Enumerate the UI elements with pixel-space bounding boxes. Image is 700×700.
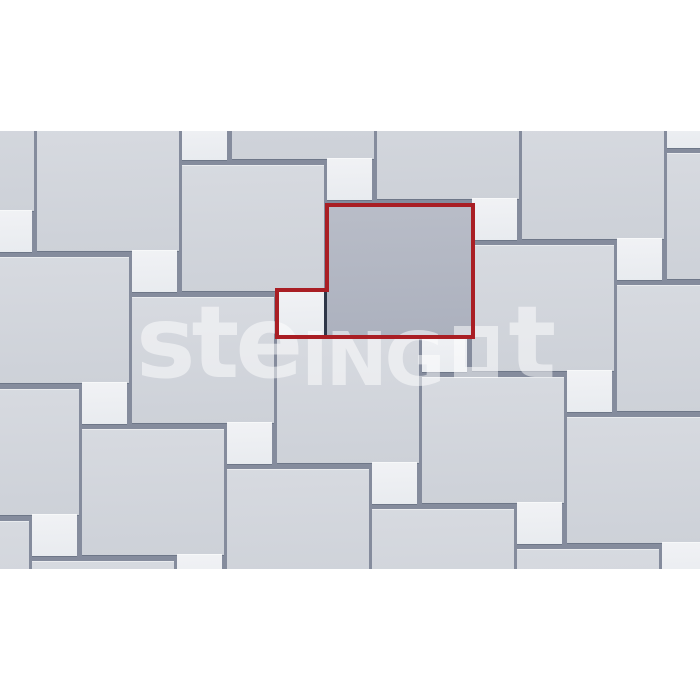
- paving-tile-big: [567, 417, 700, 543]
- paving-tile-small: [517, 502, 562, 544]
- paving-tile-big: [0, 521, 29, 569]
- paving-tile-big: [667, 153, 700, 279]
- paving-tile-big: [0, 257, 129, 383]
- paving-scene: ste ING t: [0, 131, 700, 569]
- paving-tile-big: [82, 429, 224, 555]
- paving-tile-small: [372, 462, 417, 504]
- paving-tile-small: [472, 198, 517, 240]
- paving-tile-big: [232, 131, 374, 159]
- paving-tile-big: [32, 561, 174, 569]
- watermark: ste ING t: [136, 293, 552, 393]
- paving-tile-big: [227, 469, 369, 569]
- paving-tile-small: [182, 131, 227, 160]
- watermark-text-t: t: [508, 293, 552, 393]
- paving-tile-small: [327, 158, 372, 200]
- watermark-square-o-icon: [454, 326, 498, 378]
- paving-tile-small: [0, 210, 32, 252]
- paving-tile-big: [0, 389, 79, 515]
- paving-tile-small: [82, 382, 127, 424]
- image-canvas: ste ING t: [0, 0, 700, 700]
- watermark-text-ing: ING: [301, 323, 442, 397]
- paving-tile-big: [37, 131, 179, 251]
- paving-tile-big: [377, 131, 519, 199]
- paving-tile-big: [617, 285, 700, 411]
- paving-tile-big: [372, 509, 514, 569]
- paving-tile-small: [662, 542, 700, 569]
- paving-tile-small: [227, 422, 272, 464]
- paving-tile-small: [617, 238, 662, 280]
- paving-tile-small: [567, 370, 612, 412]
- paving-tile-small: [32, 514, 77, 556]
- watermark-text-ste: ste: [136, 293, 299, 393]
- paving-tile-big: [182, 165, 324, 291]
- paving-tile-big: [517, 549, 659, 569]
- paving-tile-big: [0, 131, 34, 211]
- paving-tile-big: [522, 131, 664, 239]
- paving-tile-small: [177, 554, 222, 569]
- paving-tile-small: [667, 131, 700, 148]
